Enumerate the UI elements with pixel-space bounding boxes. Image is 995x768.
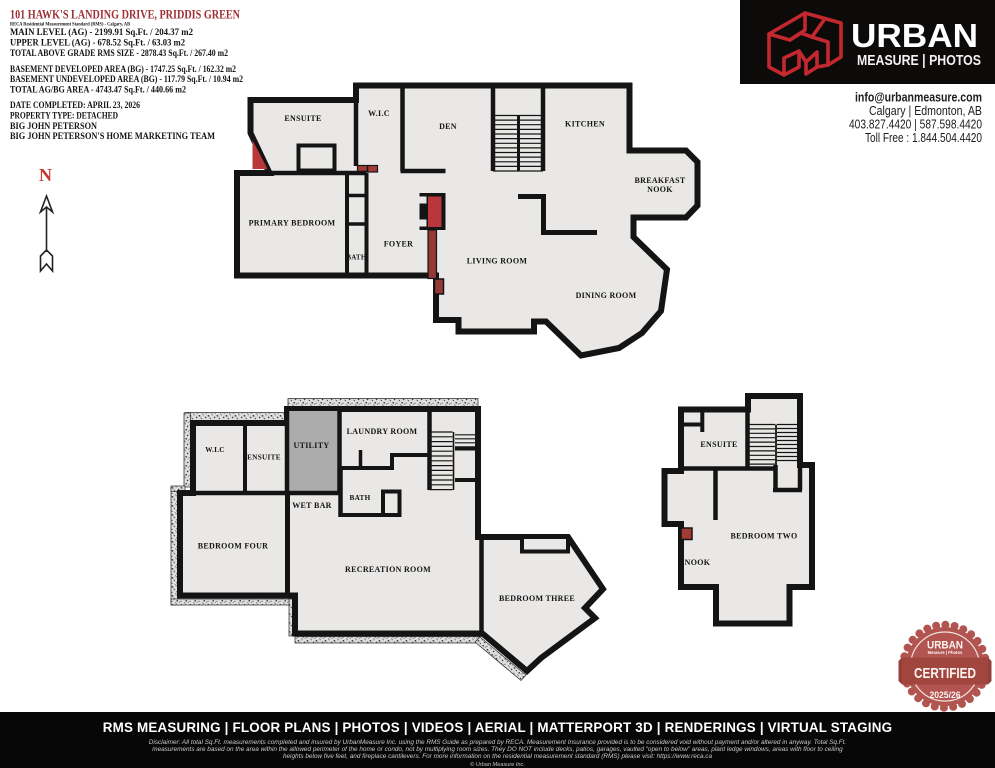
svg-text:NOOK: NOOK — [647, 185, 673, 194]
svg-text:KITCHEN: KITCHEN — [565, 120, 605, 129]
svg-text:LIVING ROOM: LIVING ROOM — [467, 257, 528, 266]
svg-text:Measure | Photos: Measure | Photos — [928, 650, 963, 655]
svg-text:LAUNDRY ROOM: LAUNDRY ROOM — [347, 427, 418, 436]
svg-text:ENSUITE: ENSUITE — [247, 454, 281, 462]
svg-text:BEDROOM TWO: BEDROOM TWO — [731, 532, 798, 541]
svg-text:ENSUITE: ENSUITE — [284, 114, 321, 123]
svg-text:ENSUITE: ENSUITE — [700, 440, 737, 449]
svg-text:UTILITY: UTILITY — [294, 441, 330, 450]
svg-text:BREAKFAST: BREAKFAST — [634, 176, 685, 185]
svg-text:2025/26: 2025/26 — [930, 690, 961, 700]
svg-text:FOYER: FOYER — [384, 240, 414, 249]
svg-text:W.I.C: W.I.C — [205, 446, 225, 454]
svg-text:BEDROOM THREE: BEDROOM THREE — [499, 594, 575, 603]
svg-text:RECREATION ROOM: RECREATION ROOM — [345, 565, 431, 574]
svg-text:BATH: BATH — [349, 494, 370, 502]
svg-text:WET BAR: WET BAR — [292, 501, 332, 510]
svg-text:PRIMARY BEDROOM: PRIMARY BEDROOM — [249, 219, 336, 228]
svg-text:BATH: BATH — [347, 255, 367, 262]
svg-text:DINING ROOM: DINING ROOM — [576, 291, 637, 300]
svg-text:BEDROOM FOUR: BEDROOM FOUR — [198, 542, 269, 551]
svg-text:W.I.C: W.I.C — [368, 109, 390, 118]
svg-text:NOOK: NOOK — [685, 558, 711, 567]
svg-text:DEN: DEN — [439, 122, 457, 131]
svg-text:N: N — [39, 165, 52, 185]
svg-text:CERTIFIED: CERTIFIED — [914, 665, 976, 682]
